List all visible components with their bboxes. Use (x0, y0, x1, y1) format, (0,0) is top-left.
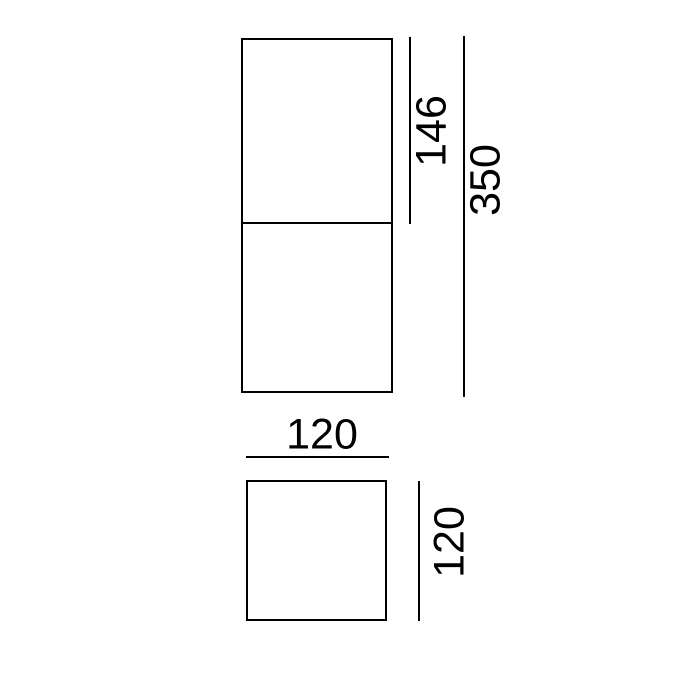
dimension-line-total-height (463, 36, 465, 397)
front-view-outline (241, 38, 393, 393)
dimension-label-upper-section: 146 (411, 95, 454, 167)
front-view-divider-line (241, 222, 393, 224)
top-view-outline (246, 480, 387, 621)
dimension-label-depth: 120 (429, 506, 472, 578)
technical-drawing: 146 350 120 120 (0, 0, 700, 700)
dimension-line-depth (418, 481, 420, 621)
dimension-label-width: 120 (286, 414, 358, 457)
dimension-line-width (246, 456, 389, 458)
dimension-label-total-height: 350 (465, 144, 508, 216)
